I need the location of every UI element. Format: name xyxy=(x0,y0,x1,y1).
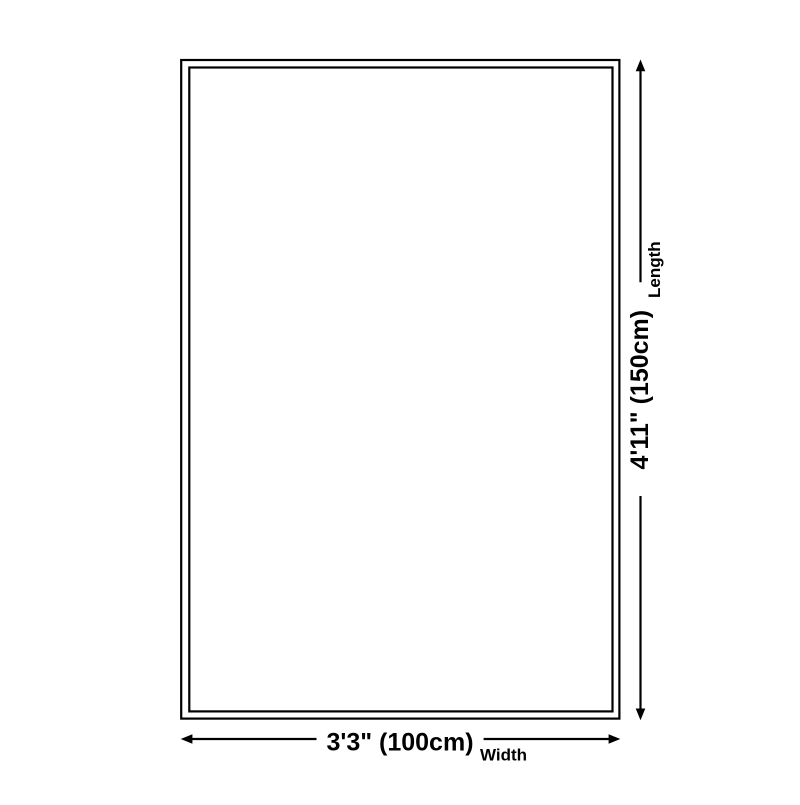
svg-text:4'11" (150cm): 4'11" (150cm) xyxy=(626,310,654,470)
svg-text:Width: Width xyxy=(480,746,527,765)
svg-text:3'3" (100cm): 3'3" (100cm) xyxy=(326,729,473,757)
svg-text:Length: Length xyxy=(645,241,664,298)
